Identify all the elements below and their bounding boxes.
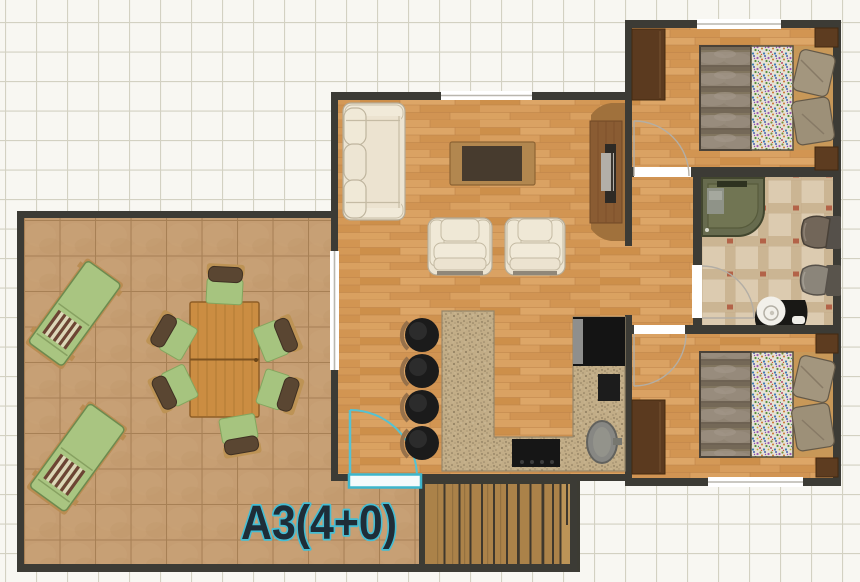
svg-text:A3(4+0): A3(4+0) xyxy=(241,497,397,550)
